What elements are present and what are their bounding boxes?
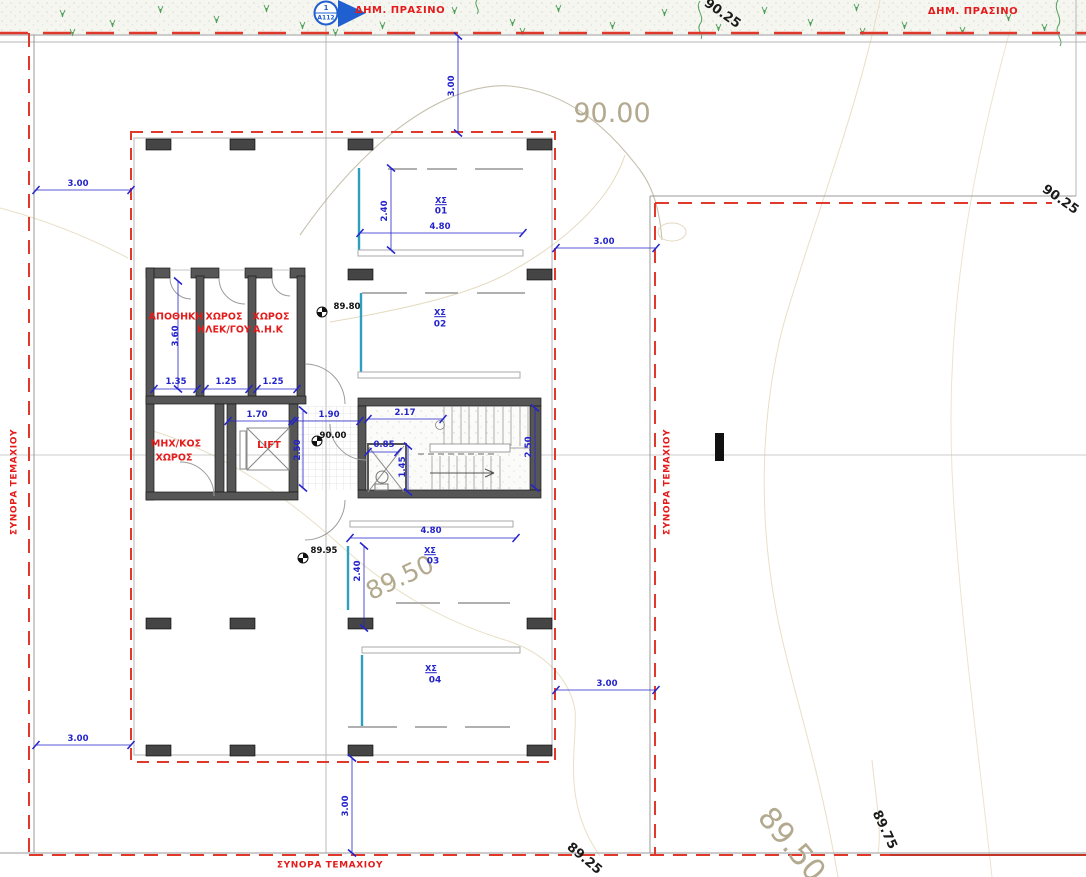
plan-linework xyxy=(0,0,1086,877)
section-cut-bar xyxy=(715,433,724,461)
public-green-band xyxy=(0,0,1086,46)
plot-boundary xyxy=(0,0,1086,855)
lift-shaft xyxy=(240,428,289,470)
floor-plan-canvas: ΔΗΜ. ΠΡΑΣΙΝΟ ΔΗΜ. ΠΡΑΣΙΝΟ 1 A112 90.25 9… xyxy=(0,0,1086,877)
